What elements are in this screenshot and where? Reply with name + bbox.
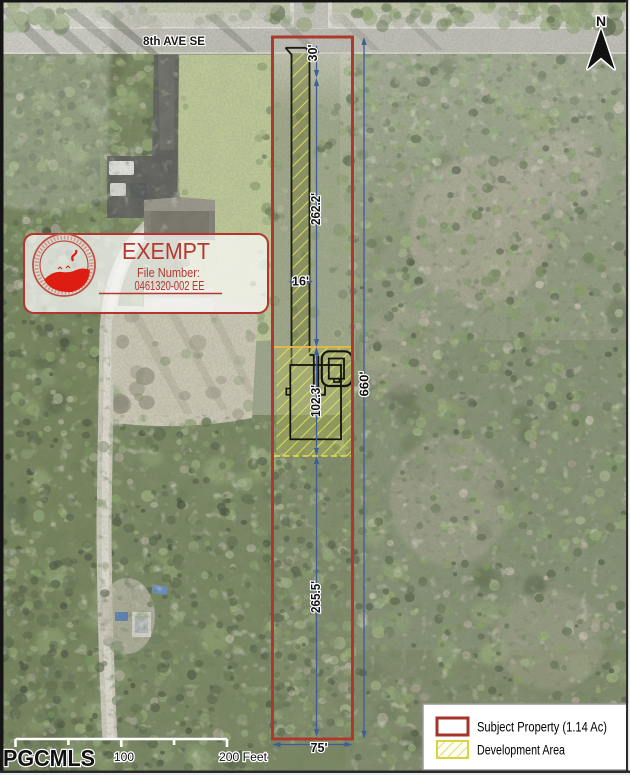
svg-text:102.3': 102.3' bbox=[309, 385, 323, 417]
svg-text:75': 75' bbox=[311, 741, 328, 755]
svg-text:262.2': 262.2' bbox=[309, 193, 323, 225]
svg-text:265.5': 265.5' bbox=[309, 581, 323, 613]
svg-text:16': 16' bbox=[292, 274, 309, 288]
svg-text:100: 100 bbox=[114, 750, 134, 764]
svg-text:660': 660' bbox=[357, 371, 371, 396]
svg-text:PGCMLS: PGCMLS bbox=[3, 745, 95, 771]
svg-text:EXEMPT: EXEMPT bbox=[122, 238, 210, 264]
svg-text:0461320-002 EE: 0461320-002 EE bbox=[135, 279, 205, 293]
svg-text:200 Feet: 200 Feet bbox=[219, 750, 268, 764]
svg-text:8th AVE SE: 8th AVE SE bbox=[143, 34, 205, 48]
svg-text:30': 30' bbox=[306, 44, 320, 61]
svg-text:Subject Property (1.14 Ac): Subject Property (1.14 Ac) bbox=[477, 720, 607, 735]
svg-text:Development Area: Development Area bbox=[477, 743, 565, 758]
svg-text:N: N bbox=[596, 13, 606, 29]
svg-text:File Number:: File Number: bbox=[137, 265, 200, 280]
